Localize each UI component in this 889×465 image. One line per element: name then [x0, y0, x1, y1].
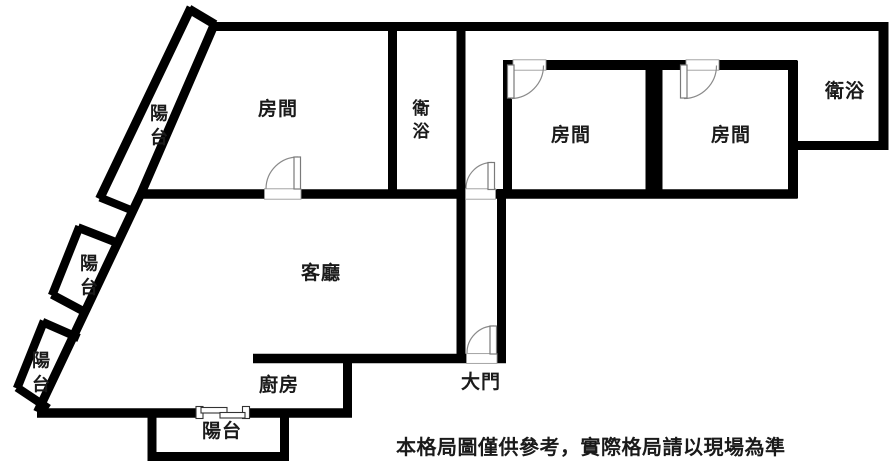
label-main-entrance: 大門	[461, 371, 501, 395]
label-balcony-middle: 陽台	[79, 252, 100, 301]
room-labels: 陽台 房間 衛浴 房間 房間 衛浴 陽台 陽台 客廳 廚房 大門 陽台 本格局圖…	[0, 0, 889, 465]
label-bedroom-right-1: 房間	[551, 124, 591, 148]
label-bathroom-left: 衛浴	[411, 98, 431, 144]
label-kitchen: 廚房	[259, 374, 299, 398]
label-balcony-bottom: 陽台	[202, 420, 242, 444]
label-bedroom-top-left: 房間	[258, 98, 298, 122]
disclaimer-text: 本格局圖僅供參考，實際格局請以現場為準	[396, 431, 786, 460]
label-balcony-lower: 陽台	[31, 349, 52, 398]
label-balcony-top: 陽台	[149, 102, 170, 151]
label-bedroom-right-2: 房間	[711, 124, 751, 148]
label-living-room: 客廳	[301, 262, 341, 286]
floor-plan-canvas: 陽台 房間 衛浴 房間 房間 衛浴 陽台 陽台 客廳 廚房 大門 陽台 本格局圖…	[0, 0, 889, 465]
label-bathroom-right: 衛浴	[825, 80, 865, 104]
